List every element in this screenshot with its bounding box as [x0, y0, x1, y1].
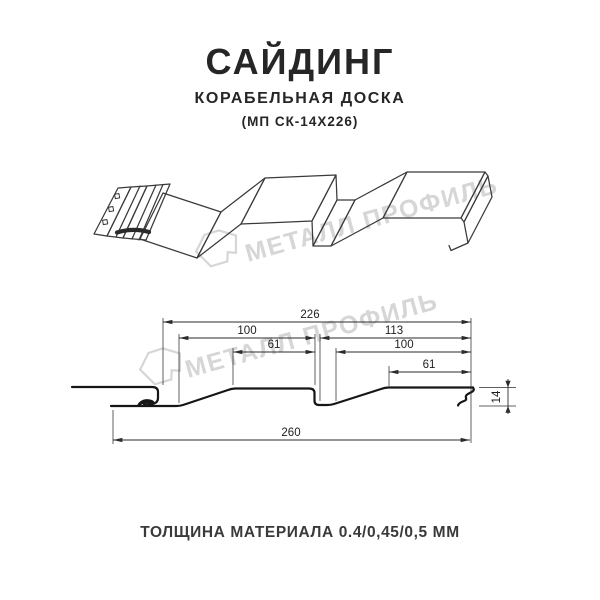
product-model: (МП СК-14Х226): [0, 114, 600, 129]
dimension-label-100-right: 100: [394, 339, 413, 351]
dimension-label-113: 113: [385, 325, 403, 337]
header: САЙДИНГ КОРАБЕЛЬНАЯ ДОСКА (МП СК-14Х226): [0, 44, 600, 129]
dimension-label-61-right: 61: [423, 359, 436, 371]
dimension-label-100-left: 100: [237, 325, 256, 337]
thickness-note: ТОЛЩИНА МАТЕРИАЛА 0.4/0,45/0,5 ММ: [0, 524, 600, 542]
product-subtitle: КОРАБЕЛЬНАЯ ДОСКА: [0, 90, 600, 108]
profile-section-drawing: [72, 387, 474, 407]
page-title: САЙДИНГ: [0, 44, 600, 80]
right-hook-fold: [449, 243, 468, 251]
dimension-label-260: 260: [281, 427, 300, 439]
break-line: [458, 388, 474, 406]
dimension-label-226: 226: [300, 309, 319, 321]
dimension-label-61-left: 61: [268, 339, 281, 351]
metall-profil-logo-icon: [137, 346, 184, 387]
dimension-label-14: 14: [491, 390, 503, 403]
